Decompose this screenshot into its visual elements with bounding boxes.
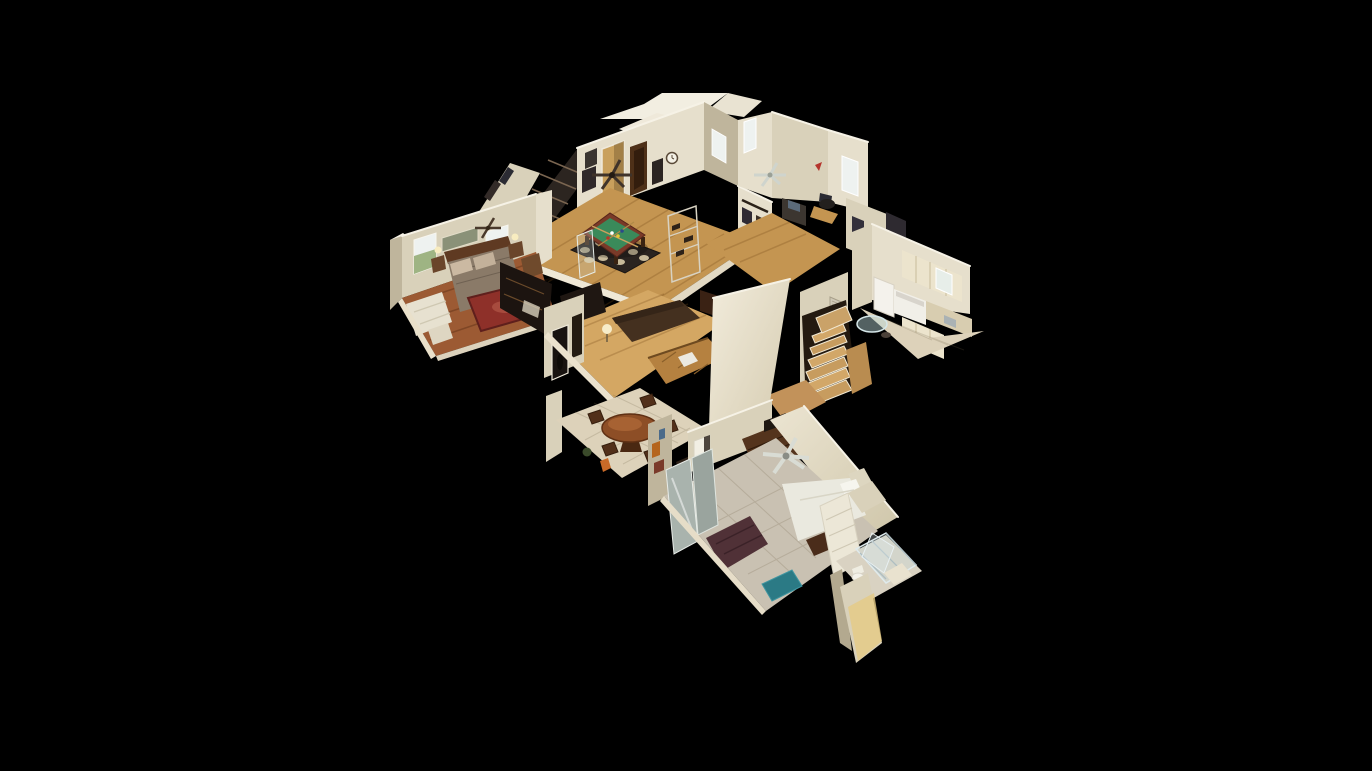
room-master-bedroom[interactable] bbox=[390, 190, 558, 361]
window bbox=[744, 118, 756, 153]
bedroom-outer-wall bbox=[390, 236, 402, 310]
kitchen-side-wall bbox=[852, 224, 872, 310]
dining-wall bbox=[546, 390, 562, 462]
window bbox=[842, 156, 858, 196]
dollhouse-model bbox=[0, 0, 1372, 771]
doorway bbox=[572, 313, 582, 358]
hallway-floor bbox=[706, 213, 840, 293]
office-floor bbox=[810, 206, 838, 224]
wall-clock-icon bbox=[667, 153, 678, 164]
plant bbox=[583, 448, 592, 457]
glass-display-case bbox=[577, 230, 595, 278]
dollhouse-viewport[interactable] bbox=[0, 0, 1372, 771]
office-wall bbox=[772, 112, 828, 202]
picture-frame bbox=[652, 158, 663, 185]
room-kitchen[interactable] bbox=[852, 224, 984, 359]
statue bbox=[557, 354, 563, 370]
